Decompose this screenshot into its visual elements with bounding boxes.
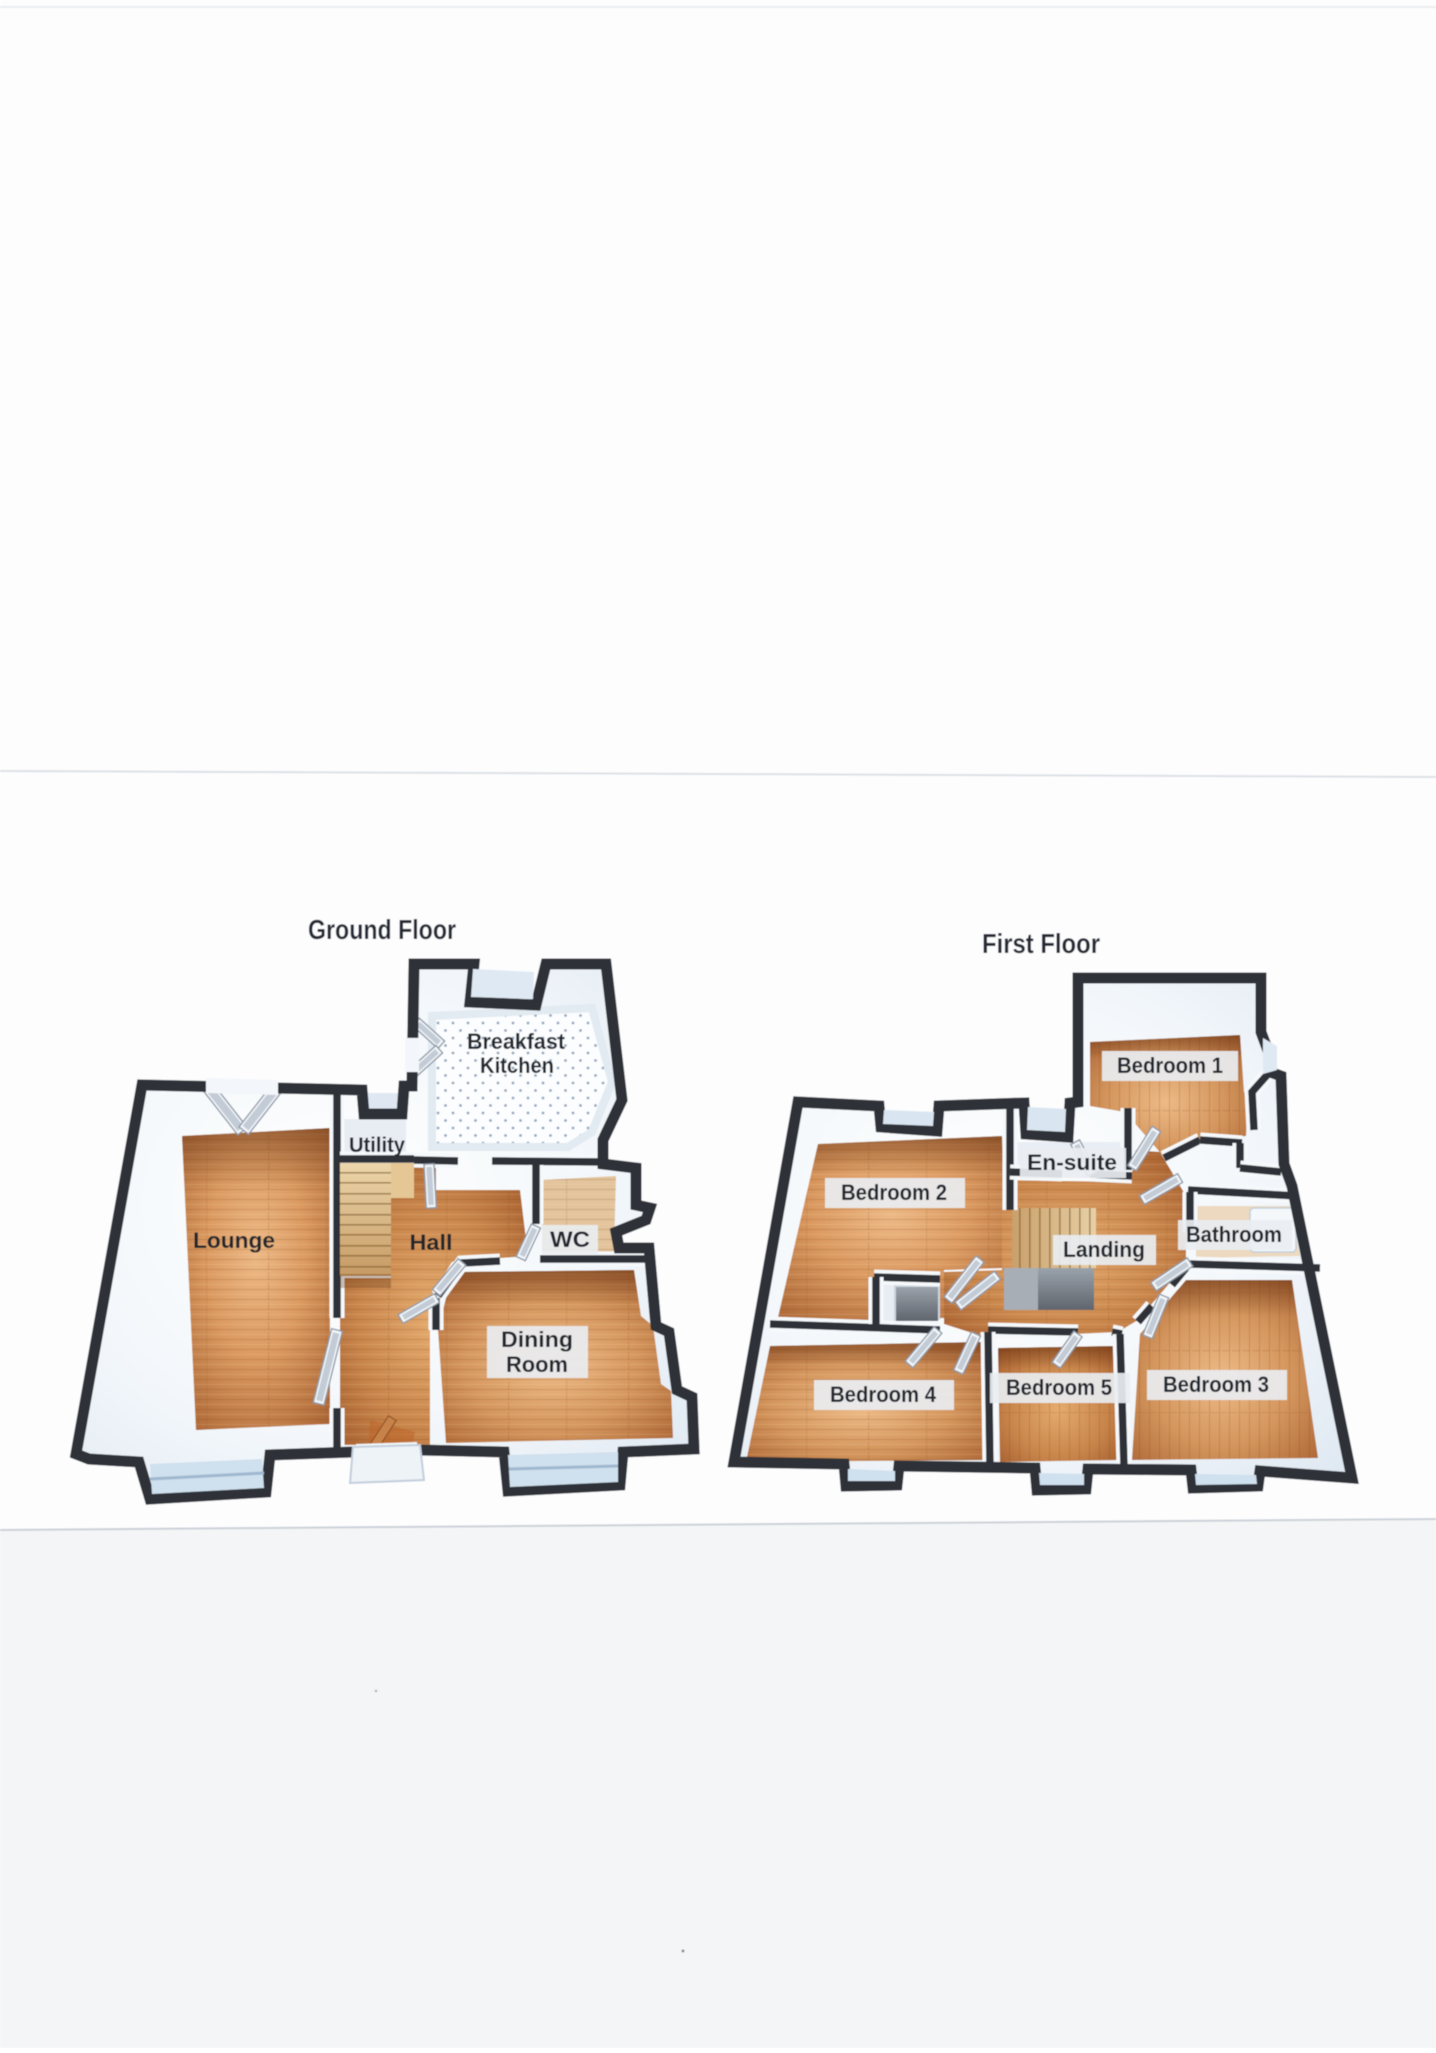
svg-text:Lounge: Lounge bbox=[193, 1228, 275, 1253]
svg-text:Bedroom 3: Bedroom 3 bbox=[1163, 1372, 1269, 1397]
svg-text:First Floor: First Floor bbox=[982, 928, 1100, 959]
svg-text:Ground Floor: Ground Floor bbox=[308, 914, 456, 945]
svg-text:Bathroom: Bathroom bbox=[1186, 1222, 1282, 1247]
svg-text:Bedroom 2: Bedroom 2 bbox=[841, 1180, 947, 1205]
svg-text:Hall: Hall bbox=[410, 1230, 453, 1255]
svg-text:Breakfast: Breakfast bbox=[467, 1029, 566, 1054]
svg-text:Bedroom 5: Bedroom 5 bbox=[1006, 1375, 1112, 1400]
svg-text:Bedroom 4: Bedroom 4 bbox=[830, 1382, 937, 1407]
svg-text:Dining: Dining bbox=[501, 1327, 573, 1352]
svg-text:WC: WC bbox=[550, 1227, 590, 1252]
svg-text:Landing: Landing bbox=[1063, 1237, 1145, 1262]
svg-text:Utility: Utility bbox=[349, 1134, 405, 1157]
svg-text:Bedroom 1: Bedroom 1 bbox=[1117, 1053, 1223, 1078]
svg-text:Room: Room bbox=[506, 1352, 568, 1377]
svg-text:Kitchen: Kitchen bbox=[480, 1053, 554, 1078]
svg-text:En-suite: En-suite bbox=[1027, 1150, 1117, 1175]
